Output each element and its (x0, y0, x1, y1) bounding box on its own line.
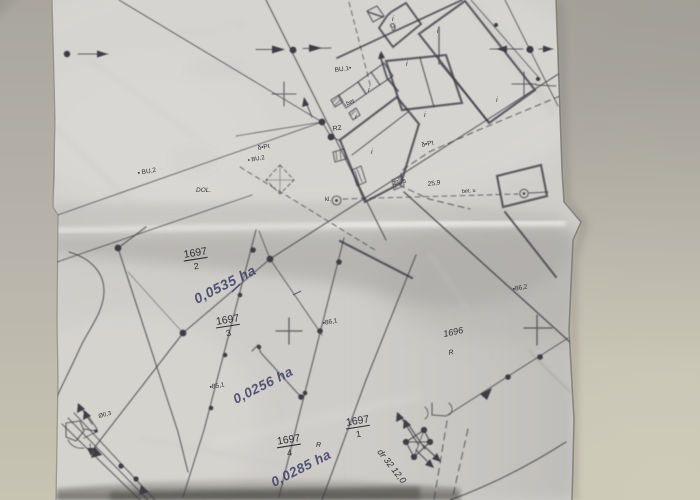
svg-text:bet. u: bet. u (462, 188, 476, 195)
svg-text:R: R (316, 442, 321, 449)
svg-text:DOL.: DOL. (196, 187, 211, 194)
svg-text:kl.: kl. (325, 197, 331, 203)
